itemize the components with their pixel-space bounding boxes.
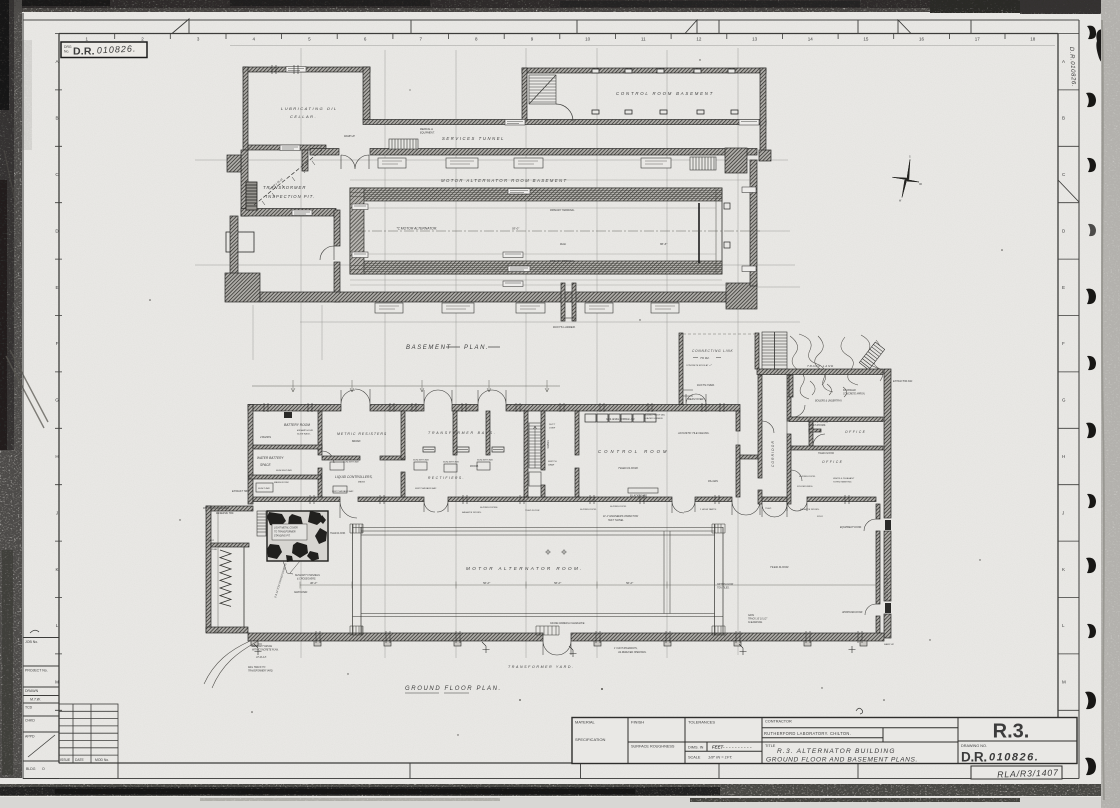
svg-text:MATERIAL: MATERIAL <box>575 720 595 725</box>
svg-text:SPACE: SPACE <box>260 463 271 467</box>
svg-text:APPD: APPD <box>25 735 35 739</box>
svg-text:ACOUSTIC TILE CEILING.: ACOUSTIC TILE CEILING. <box>677 431 710 435</box>
svg-text:EXHAUST TRF.: EXHAUST TRF. <box>232 490 249 493</box>
svg-text:CELLAR.: CELLAR. <box>290 114 317 119</box>
svg-text:MAINS ROOM.: MAINS ROOM. <box>274 481 289 484</box>
svg-text:DUCTS LADDER.: DUCTS LADDER. <box>553 325 576 329</box>
svg-text:SCALE: SCALE <box>688 756 701 760</box>
svg-text:BATTERY ROOM: BATTERY ROOM <box>284 423 310 427</box>
svg-text:EQUIPMENT.: EQUIPMENT. <box>420 132 435 135</box>
svg-text:TOLERANCES: TOLERANCES <box>688 720 715 725</box>
svg-text:STANDING PIT.: STANDING PIT. <box>274 535 291 538</box>
svg-text:F: F <box>1062 341 1065 346</box>
svg-text:GROUND FLOOR AND BASEMENT: GROUND FLOOR AND BASEMENT PLANS. <box>766 757 918 764</box>
svg-text:PLAN.: PLAN. <box>464 345 489 351</box>
svg-text:ROOM.: ROOM. <box>470 464 479 468</box>
svg-text:F: F <box>56 341 59 346</box>
svg-text:RAIL: RAIL <box>560 242 567 246</box>
svg-text:BASEMENT: BASEMENT <box>406 345 452 351</box>
svg-text:RAMP UP: RAMP UP <box>344 135 355 138</box>
svg-text:TILED: TILED <box>765 508 772 510</box>
svg-text:6IN BOILER: 6IN BOILER <box>843 390 856 392</box>
svg-text:SLIDING DOOR.: SLIDING DOOR. <box>610 506 627 508</box>
svg-text:GAS LEVEL NORMAL AIR.: GAS LEVEL NORMAL AIR. <box>606 418 636 421</box>
svg-text:TILED FLOOR.: TILED FLOOR. <box>770 565 789 569</box>
svg-text:RAMP UP.: RAMP UP. <box>884 643 895 646</box>
svg-text:A: A <box>1062 59 1065 64</box>
svg-text:No.: No. <box>64 49 69 53</box>
svg-text:SWITCHBOARD BAY.: SWITCHBOARD BAY. <box>415 487 437 490</box>
svg-text:OPTION FLOW: OPTION FLOW <box>717 584 734 586</box>
svg-text:SERVICES TUNNEL: SERVICES TUNNEL <box>442 136 505 141</box>
svg-text:10: 10 <box>585 37 591 42</box>
svg-text:SLIDING DOORS.: SLIDING DOORS. <box>480 507 498 509</box>
svg-text:R.3. ALTERNATOR BUILDING: R.3. ALTERNATOR BUILDING <box>777 748 896 755</box>
svg-text:K: K <box>1062 567 1065 572</box>
svg-text:AT 16 A.P.: AT 16 A.P. <box>255 656 267 659</box>
svg-text:SLIDING DOOR.: SLIDING DOOR. <box>580 509 597 511</box>
svg-text:TON TILES.: TON TILES. <box>717 588 730 590</box>
svg-text:BOILERS & UNDERTRAY.: BOILERS & UNDERTRAY. <box>815 400 843 403</box>
svg-text:CLEARANCE.: CLEARANCE. <box>748 621 763 624</box>
svg-text:℃ MOTOR ALTERNATOR.: ℃ MOTOR ALTERNATOR. <box>396 227 437 231</box>
svg-text:CONCRETE ROOF AT +7': CONCRETE ROOF AT +7' <box>686 364 712 367</box>
svg-text:15: 15 <box>863 37 869 42</box>
svg-text:MOD No.: MOD No. <box>95 758 109 762</box>
svg-text:SUNLT BAY: SUNLT BAY <box>258 487 270 490</box>
svg-text:PARTITIONS REMOVED: PARTITIONS REMOVED <box>203 507 229 510</box>
svg-text:CONTROL ROOM BASEMENT: CONTROL ROOM BASEMENT <box>616 91 714 96</box>
svg-text:14: 14 <box>808 37 814 42</box>
svg-text:50'-0": 50'-0" <box>626 581 634 585</box>
svg-text:D.R.: D.R. <box>961 750 987 765</box>
svg-text:11: 11 <box>641 37 646 42</box>
svg-text:H: H <box>55 454 58 459</box>
svg-text:DUCTS OVER.: DUCTS OVER. <box>697 383 715 387</box>
svg-text:GEAR: GEAR <box>548 464 555 467</box>
svg-text:WHITE & PLEASANT: WHITE & PLEASANT <box>833 477 855 480</box>
svg-text:4 BANKS: 4 BANKS <box>260 435 271 439</box>
svg-text:TOILET & FUTURE: TOILET & FUTURE <box>808 422 829 424</box>
svg-text:R.3.: R.3. <box>993 721 1030 743</box>
svg-text:LOUVRE: LOUVRE <box>208 549 218 551</box>
svg-text:BALANCE DOORS.: BALANCE DOORS. <box>462 511 482 514</box>
svg-text:LIQUID CONTROLLERS,: LIQUID CONTROLLERS, <box>335 475 373 479</box>
svg-text:M.T.W.: M.T.W. <box>30 698 41 702</box>
svg-text:PRIMARY TERMINAL: PRIMARY TERMINAL <box>550 209 575 212</box>
svg-text:TILED FLOOR.: TILED FLOOR. <box>618 466 639 470</box>
svg-text:APPROVED DOOR.: APPROVED DOOR. <box>841 611 863 614</box>
svg-text:B: B <box>55 116 58 121</box>
svg-text:41'-1" ENGINEER'S INSPECTION: 41'-1" ENGINEER'S INSPECTION <box>603 515 638 518</box>
svg-text:16: 16 <box>919 37 925 42</box>
svg-text:PROJECT No.: PROJECT No. <box>25 669 48 673</box>
svg-text:EQUIPMENT DOOR.: EQUIPMENT DOOR. <box>840 527 862 529</box>
svg-text:TCD: TCD <box>25 706 33 710</box>
svg-text:DATE: DATE <box>75 758 85 762</box>
svg-text:86'-6": 86'-6" <box>660 242 668 246</box>
svg-text:RUTHERFORD LABORATORY. CHILT: RUTHERFORD LABORATORY. CHILTON. <box>764 731 851 736</box>
svg-text:DRAWING NO.: DRAWING NO. <box>961 744 987 748</box>
svg-text:E: E <box>55 285 58 290</box>
svg-text:O: O <box>42 767 45 771</box>
svg-text:400 AMP HOUR: 400 AMP HOUR <box>297 429 313 432</box>
svg-text:E: E <box>1062 285 1065 290</box>
svg-text:WATER BATTERY: WATER BATTERY <box>257 456 284 460</box>
svg-text:CORRIDOR: CORRIDOR <box>771 440 775 467</box>
svg-text:TEST TUNNEL: TEST TUNNEL <box>608 520 624 522</box>
svg-text:010826.: 010826. <box>97 43 137 55</box>
svg-text:TOILET ROOMS.: TOILET ROOMS. <box>808 425 826 427</box>
svg-text:BEAM OVER.: BEAM OVER. <box>688 397 704 401</box>
svg-text:1' CAVIT ROADWAYS,: 1' CAVIT ROADWAYS, <box>614 647 638 650</box>
svg-text:B LACKBOARD: B LACKBOARD <box>630 495 647 498</box>
svg-text:AS REDUCED OPENINGS.: AS REDUCED OPENINGS. <box>617 651 647 654</box>
svg-text:K: K <box>55 567 58 572</box>
svg-text:PRIMARY TERMINAL: PRIMARY TERMINAL <box>550 260 575 263</box>
svg-text:MAINS: MAINS <box>358 481 365 484</box>
svg-text:17: 17 <box>975 37 981 42</box>
svg-text:D.R.: D.R. <box>73 46 95 58</box>
svg-text:GROUND FLOOR PLAN.: GROUND FLOOR PLAN. <box>405 686 502 692</box>
svg-text:TILED FLOOR.: TILED FLOOR. <box>525 510 540 512</box>
svg-text:DUCT: DUCT <box>549 424 556 426</box>
svg-text:M: M <box>1062 680 1066 685</box>
svg-text:MOTOR ALTERNATOR ROOM.: MOTOR ALTERNATOR ROOM. <box>466 566 584 571</box>
svg-text:TOPED PAINTING.: TOPED PAINTING. <box>833 481 852 484</box>
svg-text:TRACK LAND: TRACK LAND <box>807 364 834 368</box>
svg-text:V.CENT.: V.CENT. <box>206 540 215 542</box>
svg-text:13: 13 <box>752 37 758 42</box>
svg-text:TILED FLOOR.: TILED FLOOR. <box>818 452 835 455</box>
svg-text:TITLE: TITLE <box>765 744 776 748</box>
svg-text:SOUND PROOF DBL: SOUND PROOF DBL <box>644 415 666 417</box>
svg-text:G: G <box>55 398 59 403</box>
svg-text:N: N <box>920 182 922 186</box>
svg-text:TO TRANSFORMER: TO TRANSFORMER <box>274 531 296 534</box>
svg-text:SPECIFICATION: SPECIFICATION <box>575 737 605 742</box>
svg-text:SWITCH: SWITCH <box>548 461 557 463</box>
svg-text:1/8" IN = 1FT.: 1/8" IN = 1FT. <box>708 754 733 759</box>
svg-text:CRANE GIRDER & CLEARANCE.: CRANE GIRDER & CLEARANCE. <box>550 622 585 625</box>
svg-text:DIMS. IN: DIMS. IN <box>688 746 704 750</box>
svg-text:RAIL TRACK TO: RAIL TRACK TO <box>248 666 265 669</box>
svg-text:CONNECTING LINK: CONNECTING LINK <box>692 349 733 353</box>
svg-text:B: B <box>1062 116 1065 121</box>
svg-text:SWITCHBOARD BAY.: SWITCHBOARD BAY. <box>332 490 354 493</box>
svg-text:SUNLIGHT BAY.: SUNLIGHT BAY. <box>477 459 494 462</box>
svg-text:CORRIDOR: CORRIDOR <box>885 573 889 600</box>
svg-text:G: G <box>1062 398 1066 403</box>
svg-text:SUNLIGHT FENCE: SUNLIGHT FENCE <box>252 646 273 648</box>
svg-text:CONTROL ROOM: CONTROL ROOM <box>598 449 670 454</box>
svg-text:1 HOUR PARTN.: 1 HOUR PARTN. <box>700 508 717 511</box>
svg-text:010826.: 010826. <box>989 752 1039 764</box>
svg-text:STAIRS: STAIRS <box>546 440 549 449</box>
svg-text:LUBRICATING OIL: LUBRICATING OIL <box>281 106 338 111</box>
svg-text:JOB No.: JOB No. <box>25 640 38 644</box>
svg-text:SUNLIGHT BAY: SUNLIGHT BAY <box>343 461 359 464</box>
svg-text:EXTRACTOR FAN.: EXTRACTOR FAN. <box>893 380 913 383</box>
svg-text:ISSUE: ISSUE <box>60 758 71 762</box>
svg-text:50'-0": 50'-0" <box>483 581 491 585</box>
svg-text:30'-0": 30'-0" <box>310 581 318 585</box>
svg-text:SLIDE RACK.: SLIDE RACK. <box>297 433 311 436</box>
svg-text:BRAND: BRAND <box>352 440 361 443</box>
svg-text:56'-0": 56'-0" <box>554 581 562 585</box>
svg-text:TRACK 10' 10 1/2": TRACK 10' 10 1/2" <box>748 618 767 621</box>
svg-text:WITH CONCRETE PLAN.: WITH CONCRETE PLAN. <box>252 649 279 652</box>
svg-text:METRIC RESISTERS: METRIC RESISTERS <box>337 432 387 436</box>
svg-text:GLAZED SCREEN.: GLAZED SCREEN. <box>644 417 663 420</box>
svg-text:TRANSFORMER YARD.: TRANSFORMER YARD. <box>508 665 575 669</box>
svg-text:& CROSSOVERS.: & CROSSOVERS. <box>297 579 316 581</box>
svg-text:A: A <box>55 59 58 64</box>
svg-text:BLDG: BLDG <box>26 767 36 771</box>
svg-text:SUNLIGHT BAY.: SUNLIGHT BAY. <box>413 459 430 462</box>
svg-text:OFFICE: OFFICE <box>822 460 843 464</box>
svg-text:TO R2.: TO R2. <box>700 356 710 360</box>
svg-text:MOTOR ALTERNATOR ROOM BA: MOTOR ALTERNATOR ROOM BASEMENT <box>441 178 568 183</box>
svg-text:55'-0": 55'-0" <box>512 227 520 231</box>
svg-text:FEET: FEET <box>712 745 724 750</box>
svg-text:J: J <box>1062 510 1064 515</box>
svg-text:CONTRACTOR: CONTRACTOR <box>765 720 792 724</box>
svg-text:TRANSFORMER YARD.: TRANSFORMER YARD. <box>248 670 274 673</box>
svg-text:SUNLIGHT CHANNELS: SUNLIGHT CHANNELS <box>295 574 320 577</box>
svg-text:RESERVE TRF.: RESERVE TRF. <box>216 512 234 515</box>
svg-text:LIGHT METAL COVER: LIGHT METAL COVER <box>274 527 298 530</box>
svg-text:RECTIFIERS.: RECTIFIERS. <box>428 476 465 480</box>
svg-text:SURFACE ROUGHNESS: SURFACE ROUGHNESS <box>631 744 675 748</box>
svg-text:FOLDED BRKS.: FOLDED BRKS. <box>797 486 813 488</box>
svg-text:TILED FLOOR.: TILED FLOOR. <box>330 533 346 535</box>
svg-text:TRANSFORMER BAYS.: TRANSFORMER BAYS. <box>428 431 497 435</box>
svg-text:J: J <box>56 510 58 515</box>
svg-text:GROUND: GROUND <box>294 590 308 594</box>
svg-text:GATE: GATE <box>748 614 755 617</box>
svg-text:CONCRETE APRON.: CONCRETE APRON. <box>843 393 866 396</box>
svg-text:18: 18 <box>1030 37 1036 42</box>
svg-text:FOLD: FOLD <box>817 516 823 518</box>
svg-text:SUNLIGHT BAY.: SUNLIGHT BAY. <box>443 461 460 464</box>
svg-text:FINISH: FINISH <box>631 720 644 725</box>
svg-text:CHKD: CHKD <box>25 719 35 723</box>
svg-text:DRG: DRG <box>64 45 72 49</box>
svg-text:M: M <box>55 680 59 685</box>
svg-text:PILLARS: PILLARS <box>708 480 718 483</box>
svg-text:SUNLIGHT BAY.: SUNLIGHT BAY. <box>276 469 293 472</box>
svg-text:OFFICE: OFFICE <box>845 430 866 434</box>
svg-text:H: H <box>1062 454 1065 459</box>
svg-text:12: 12 <box>696 37 702 42</box>
svg-text:OVER: OVER <box>549 428 556 430</box>
svg-text:DRAWN: DRAWN <box>25 689 39 693</box>
svg-text:BALANCE DOORS.: BALANCE DOORS. <box>800 508 820 511</box>
